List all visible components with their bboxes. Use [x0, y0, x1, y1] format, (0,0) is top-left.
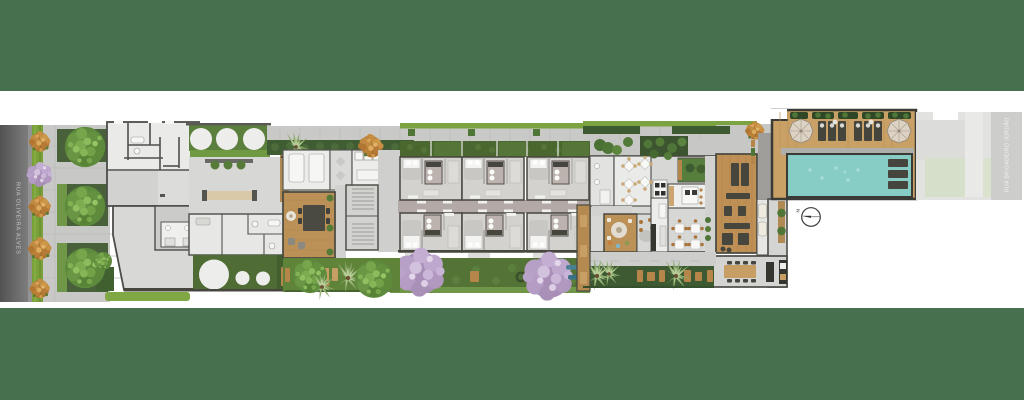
svg-text:N: N [796, 209, 802, 213]
svg-text:RUA BRIGADEIRO JORDÃO: RUA BRIGADEIRO JORDÃO [1004, 117, 1011, 192]
svg-text:RUA OLIVEIRA ALVES: RUA OLIVEIRA ALVES [15, 182, 21, 255]
